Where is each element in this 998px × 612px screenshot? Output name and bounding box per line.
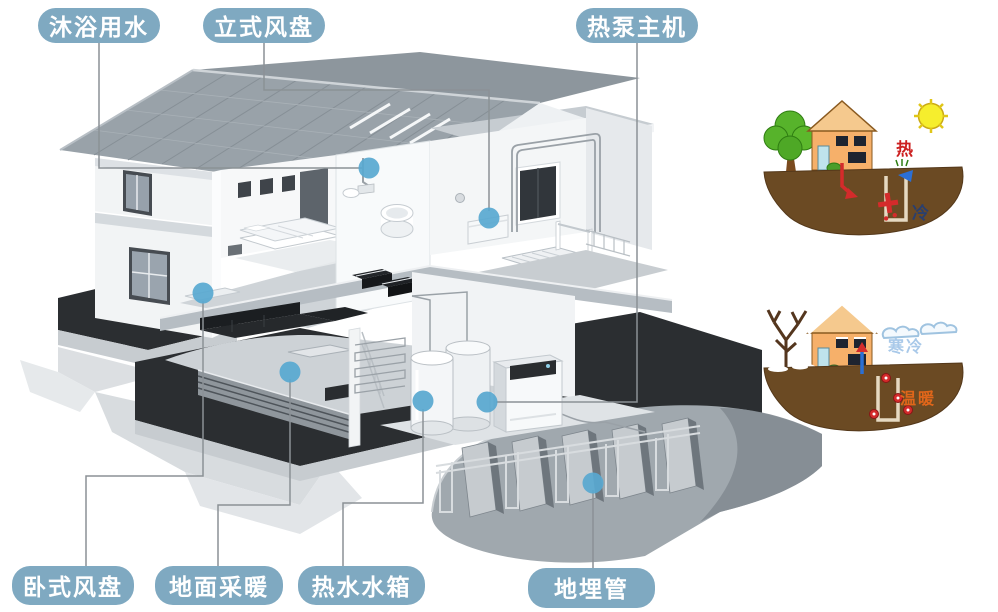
callout-heat-pump-main-unit: 热泵主机 — [576, 8, 698, 43]
marker-bathing-water — [359, 158, 380, 179]
round-bathtub — [381, 205, 413, 238]
toilet — [343, 189, 359, 198]
callout-vertical-fan-coil: 立式风盘 — [203, 8, 325, 43]
geothermal-heatpump-diagram: 热 冷 — [0, 0, 998, 612]
callout-hot-water-tank: 热水水箱 — [298, 566, 425, 605]
winter-mini-diagram: 寒冷 温暖 — [764, 303, 963, 431]
summer-ground — [764, 167, 963, 235]
snow-cloud-icons — [883, 323, 957, 338]
marker-buried-pipe — [583, 473, 604, 494]
nightstand — [228, 244, 242, 256]
summer-hot-label: 热 — [896, 139, 913, 160]
heat-pump-unit — [494, 355, 562, 432]
marker-horizontal-fan-coil — [193, 283, 214, 304]
scene-illustration: 热 冷 — [0, 0, 998, 612]
summer-cold-label: 冷 — [912, 203, 929, 224]
callout-buried-pipe: 地埋管 — [528, 568, 655, 608]
callout-horizontal-fan-coil-label: 卧式风盘 — [23, 568, 123, 602]
tree-icon — [764, 111, 816, 172]
winter-cold-label: 寒冷 — [887, 337, 924, 356]
marker-heat-pump — [477, 392, 498, 413]
callout-hot-water-tank-label: 热水水箱 — [312, 568, 412, 602]
callout-floor-heating-label: 地面采暖 — [169, 568, 269, 602]
callout-floor-heating: 地面采暖 — [155, 566, 283, 605]
grass-icon — [896, 159, 908, 166]
winter-warm-label: 温暖 — [899, 389, 936, 408]
marker-hot-water-tank — [413, 391, 434, 412]
summer-house-icon — [808, 101, 876, 173]
callout-bathing-water: 沐浴用水 — [38, 8, 160, 43]
marker-floor-heating — [280, 362, 301, 383]
callout-bathing-water-label: 沐浴用水 — [49, 8, 149, 42]
facade-window-upper — [123, 170, 152, 216]
sun-icon — [914, 99, 948, 133]
bare-tree-icon — [768, 310, 806, 372]
callout-buried-pipe-label: 地埋管 — [554, 570, 629, 604]
callout-vertical-fan-coil-label: 立式风盘 — [214, 8, 314, 42]
facade-window-lower — [129, 247, 170, 305]
wall-lamp — [456, 194, 465, 203]
summer-mini-diagram: 热 冷 — [764, 99, 963, 235]
callout-horizontal-fan-coil: 卧式风盘 — [12, 566, 134, 605]
callout-heat-pump-label: 热泵主机 — [587, 8, 687, 42]
marker-vertical-fan-coil — [479, 208, 500, 229]
